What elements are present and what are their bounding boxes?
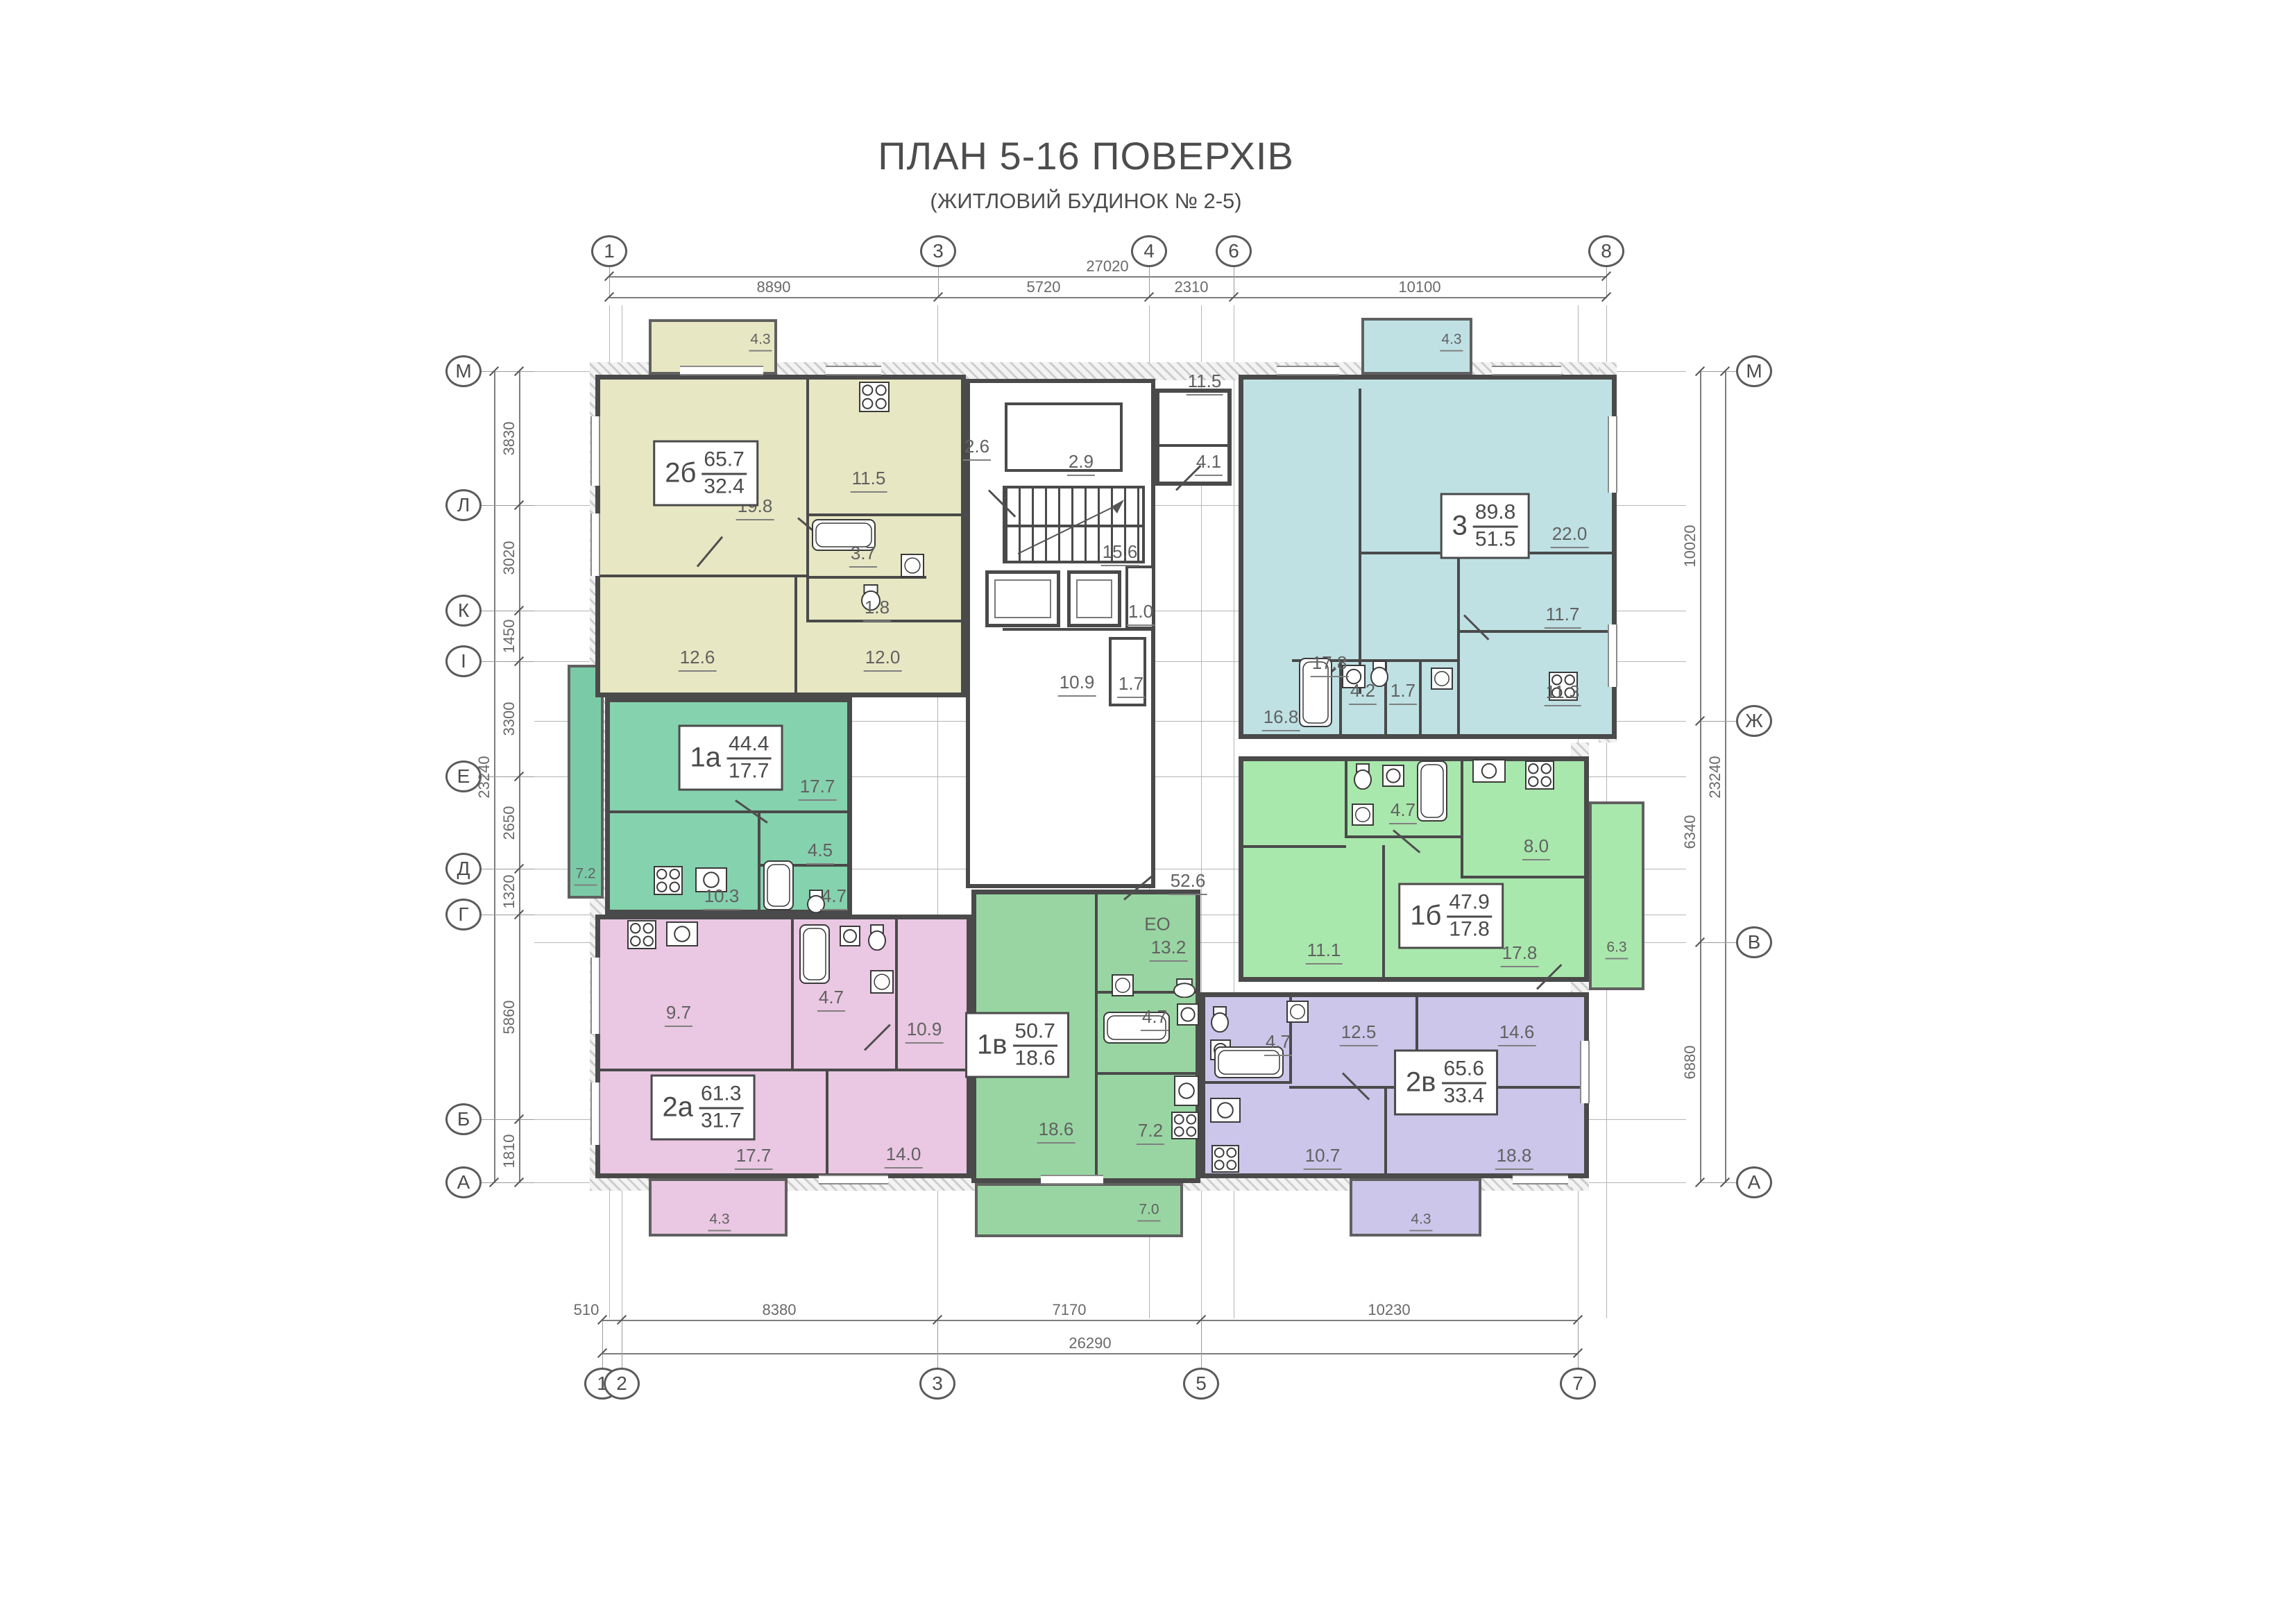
- partition-wall: [1155, 444, 1232, 447]
- dimension-label: 7170: [1053, 1301, 1087, 1319]
- room-area-label: 18.6: [1037, 1119, 1075, 1144]
- room-area-label: 10.9: [1058, 672, 1096, 697]
- axis-extension-line: [482, 611, 534, 611]
- page-title: ПЛАН 5-16 ПОВЕРХІВ: [878, 133, 1294, 178]
- apartment-1b-info-box: 1б47.917.8: [1398, 883, 1504, 949]
- sink-icon: [666, 921, 698, 950]
- window-opening: [590, 1082, 600, 1145]
- axis-extension-line: [1201, 1321, 1202, 1368]
- partition-wall: [1419, 659, 1422, 739]
- room-area-label: 11.1: [1306, 940, 1343, 965]
- axis-marker-left-Л: Л: [445, 489, 482, 521]
- room-area-label: 4.2: [1349, 680, 1377, 705]
- room-area-label: 2.9: [1067, 451, 1095, 476]
- dimension-label: 10100: [1398, 278, 1440, 296]
- axis-marker-left-І: І: [445, 645, 482, 677]
- apartment-area-living: 33.4: [1444, 1084, 1484, 1108]
- room-area-label: 11.5: [851, 468, 887, 493]
- axis-extension-line: [1606, 266, 1607, 298]
- elevator-shaft: [1067, 570, 1121, 627]
- apartment-area-fraction: 65.732.4: [701, 448, 746, 499]
- axis-extension-line: [482, 1182, 534, 1183]
- stove-icon: [1525, 760, 1554, 793]
- partition-wall: [1095, 1072, 1200, 1075]
- washing-machine-icon: [1431, 668, 1453, 693]
- dimension-label: 6340: [1681, 815, 1699, 849]
- dimension-label: 2310: [1175, 278, 1209, 296]
- axis-extension-line: [1701, 371, 1737, 372]
- axis-marker-top-3: 3: [920, 235, 956, 267]
- dimension-label: 3020: [500, 541, 518, 575]
- apartment-area-total: 65.7: [701, 448, 746, 475]
- axis-extension-line: [1701, 942, 1737, 943]
- window-opening: [590, 513, 600, 576]
- axis-marker-bottom-7: 7: [1560, 1368, 1596, 1400]
- bathtub-icon: [1417, 760, 1447, 825]
- room-area-label: 11.7: [1545, 604, 1581, 629]
- partition-wall: [758, 810, 760, 915]
- apartment-area-living: 51.5: [1475, 527, 1515, 552]
- apartment-id-label: 2в: [1406, 1067, 1436, 1098]
- room-area-label: 2.6: [963, 436, 991, 461]
- toilet-icon: [1353, 763, 1372, 793]
- room-area-label: 17.7: [735, 1145, 773, 1170]
- room-area-label: 1.7: [1389, 680, 1417, 705]
- axis-marker-left-К: К: [445, 595, 482, 627]
- stove-icon: [1171, 1112, 1199, 1143]
- window-opening: [680, 366, 763, 375]
- axis-marker-top-8: 8: [1588, 235, 1624, 267]
- dimension-label: 5720: [1027, 278, 1061, 296]
- dimension-label: 8380: [763, 1301, 797, 1319]
- apartment-id-label: 1б: [1410, 901, 1441, 932]
- room-area-label: 4.7: [820, 885, 848, 910]
- room-area-label: 10.3: [703, 885, 741, 910]
- axis-extension-line: [1701, 721, 1737, 722]
- page-subtitle: (ЖИТЛОВИЙ БУДИНОК № 2-5): [930, 189, 1241, 214]
- room-area-label: 14.6: [1498, 1021, 1536, 1046]
- room-area-label: 17.8: [1311, 652, 1349, 677]
- axis-extension-line: [609, 266, 610, 298]
- window-opening: [1492, 366, 1561, 375]
- axis-extension-line: [938, 266, 939, 298]
- partition-wall: [1239, 845, 1346, 848]
- annotation-label: ЕО: [1144, 914, 1171, 935]
- room-area-label: 13.2: [1150, 937, 1188, 962]
- room-area-label: 3.7: [849, 543, 877, 568]
- window-opening: [590, 416, 600, 486]
- axis-extension-line: [482, 1119, 534, 1120]
- apartment-area-total: 44.4: [726, 733, 771, 760]
- dimension-total-label: 27020: [1086, 257, 1128, 275]
- partition-wall: [826, 1069, 828, 1178]
- window-opening: [1580, 1041, 1590, 1103]
- axis-marker-left-Б: Б: [445, 1103, 482, 1135]
- room-area-label: 12.6: [679, 647, 717, 672]
- axis-marker-top-6: 6: [1216, 235, 1252, 267]
- axis-marker-left-М: М: [445, 355, 482, 387]
- apartment-area-total: 61.3: [699, 1082, 743, 1110]
- partition-wall: [1461, 876, 1589, 878]
- stove-icon: [859, 382, 890, 416]
- toilet-icon: [1210, 1006, 1230, 1036]
- balcony-area-label: 4.3: [749, 332, 772, 352]
- washing-machine-icon: [1112, 974, 1134, 1000]
- dimension-label: 1450: [500, 620, 518, 654]
- axis-extension-line: [1701, 1182, 1737, 1183]
- washing-machine-icon: [1286, 1001, 1309, 1026]
- dimension-total-label: 23240: [1706, 756, 1724, 798]
- dimension-line: [602, 1353, 1578, 1354]
- axis-extension-line: [482, 505, 534, 506]
- dimension-label: 3300: [500, 702, 518, 736]
- partition-wall: [1345, 756, 1347, 838]
- axis-extension-line: [482, 371, 534, 372]
- axis-extension-line: [602, 1321, 603, 1368]
- apartment-area-living: 17.7: [729, 759, 769, 783]
- stove-icon: [654, 866, 683, 899]
- axis-marker-right-Ж: Ж: [1736, 705, 1772, 737]
- floor-plan-canvas: ПЛАН 5-16 ПОВЕРХІВ (ЖИТЛОВИЙ БУДИНОК № 2…: [0, 0, 2296, 1623]
- axis-marker-right-В: В: [1736, 926, 1772, 958]
- room-area-label: 9.7: [665, 1002, 692, 1027]
- room-area-label: 4.5: [806, 840, 834, 865]
- dimension-line: [1700, 371, 1701, 1182]
- balcony-area-label: 7.2: [574, 866, 597, 886]
- room-area-label: 15.6: [1101, 541, 1139, 566]
- apartment-1v-info-box: 1в50.718.6: [965, 1012, 1069, 1078]
- axis-extension-line: [482, 661, 534, 662]
- apartment-area-fraction: 61.331.7: [699, 1082, 743, 1133]
- partition-wall: [1457, 552, 1460, 739]
- axis-extension-line: [482, 915, 534, 915]
- partition-wall: [605, 810, 852, 813]
- dimension-label: 10020: [1681, 525, 1699, 567]
- room-area-label: 1.0: [1127, 601, 1155, 626]
- partition-wall: [791, 915, 794, 1069]
- sink-icon: [840, 926, 860, 950]
- bathtub-icon: [799, 924, 830, 987]
- room-area-label: 12.0: [864, 647, 902, 672]
- room-area-label: 4.7: [817, 987, 845, 1012]
- apartment-area-living: 31.7: [701, 1109, 741, 1133]
- balcony-area-label: 4.3: [1440, 332, 1463, 352]
- room-area-label: 11.5: [1187, 371, 1223, 396]
- axis-marker-top-4: 4: [1131, 235, 1167, 267]
- dimension-label: 3830: [500, 422, 518, 456]
- window-opening: [826, 366, 881, 375]
- axis-extension-line: [482, 869, 534, 869]
- window-opening: [1608, 416, 1617, 493]
- elevator-lobby: [1005, 402, 1123, 472]
- dimension-label: 1810: [500, 1135, 518, 1169]
- dimension-total-label: 23240: [475, 756, 493, 798]
- window-opening: [1608, 624, 1617, 687]
- partition-wall: [1359, 389, 1361, 694]
- room-area-label: 10.7: [1304, 1145, 1342, 1170]
- dimension-label: 5860: [500, 1001, 518, 1035]
- room-area-label: 16.8: [1262, 706, 1300, 731]
- dimension-line: [602, 1320, 1578, 1321]
- sink-icon: [1382, 765, 1404, 790]
- apartment-area-living: 18.6: [1015, 1046, 1055, 1071]
- window-opening: [1277, 366, 1339, 375]
- partition-wall: [1382, 845, 1385, 982]
- room-area-label: 7.2: [1137, 1120, 1164, 1145]
- room-area-label: 18.8: [1495, 1145, 1533, 1170]
- apartment-area-fraction: 89.851.5: [1473, 501, 1517, 552]
- balcony-area-label: 4.3: [708, 1212, 731, 1232]
- axis-marker-bottom-5: 5: [1183, 1368, 1219, 1400]
- partition-wall: [1461, 756, 1463, 878]
- axis-marker-bottom-2: 2: [604, 1368, 640, 1400]
- room-area-label: 8.0: [1522, 835, 1550, 860]
- dimension-label: 10230: [1368, 1301, 1410, 1319]
- apartment-area-living: 17.8: [1449, 917, 1489, 942]
- dimension-line: [609, 276, 1606, 278]
- partition-wall: [1384, 1086, 1387, 1178]
- dimension-label: 8890: [757, 278, 791, 296]
- axis-marker-bottom-3: 3: [919, 1368, 955, 1400]
- partition-wall: [595, 575, 806, 577]
- dimension-label: 510: [574, 1301, 599, 1319]
- dimension-label: 6880: [1681, 1046, 1699, 1080]
- apartment-id-label: 3: [1452, 511, 1468, 542]
- toilet-icon: [1173, 978, 1196, 1001]
- apartment-area-total: 89.8: [1473, 501, 1517, 528]
- apartment-area-total: 65.6: [1442, 1057, 1486, 1085]
- axis-extension-line: [1149, 266, 1150, 298]
- room-area-label: 12.5: [1340, 1021, 1378, 1046]
- room-area-label: 4.7: [1141, 1006, 1168, 1031]
- axis-extension-line: [937, 1321, 938, 1368]
- partition-wall: [794, 575, 797, 697]
- balcony-fill: [568, 665, 604, 899]
- sink-icon: [1210, 1098, 1241, 1126]
- apartment-2b-info-box: 2б65.732.4: [653, 441, 758, 507]
- apartment-area-total: 47.9: [1447, 891, 1491, 918]
- room-area-label: 11.3: [1545, 681, 1581, 706]
- room-area-label: 4.1: [1195, 451, 1223, 476]
- axis-extension-line: [1578, 1321, 1579, 1368]
- partition-wall: [895, 915, 898, 1069]
- partition-wall: [806, 513, 966, 516]
- room-area-label: 22.0: [1551, 523, 1589, 548]
- room-area-label: 17.8: [1501, 942, 1539, 967]
- axis-marker-left-А: А: [445, 1166, 482, 1198]
- window-opening: [1513, 1175, 1568, 1184]
- apartment-id-label: 2б: [665, 458, 696, 489]
- apartment-2v-info-box: 2в65.633.4: [1394, 1050, 1498, 1116]
- toilet-icon: [867, 924, 887, 954]
- axis-marker-top-1: 1: [591, 235, 627, 267]
- apartment-area-fraction: 44.417.7: [726, 733, 771, 783]
- apartment-area-total: 50.7: [1013, 1020, 1057, 1047]
- balcony-area-label: 4.3: [1409, 1212, 1432, 1232]
- partition-wall: [806, 379, 809, 621]
- axis-marker-left-Д: Д: [445, 853, 482, 885]
- apartment-3-info-box: 389.851.5: [1440, 493, 1530, 559]
- washing-machine-icon: [870, 970, 894, 997]
- washing-machine-icon: [901, 554, 924, 581]
- balcony-fill: [1589, 801, 1644, 990]
- axis-extension-line: [622, 1321, 622, 1368]
- apartment-1a-info-box: 1а44.417.7: [679, 725, 783, 791]
- axis-extension-line: [1234, 266, 1234, 298]
- partition-wall: [595, 1069, 971, 1071]
- apartment-area-fraction: 47.917.8: [1447, 891, 1491, 942]
- room-area-label: 14.0: [885, 1144, 923, 1169]
- apartment-area-fraction: 50.718.6: [1013, 1020, 1057, 1071]
- dimension-line: [1725, 371, 1726, 1182]
- dimension-line: [609, 297, 1606, 298]
- apartment-id-label: 2а: [663, 1092, 694, 1123]
- stove-icon: [627, 920, 656, 953]
- apartment-id-label: 1а: [690, 742, 722, 774]
- room-area-label: 1.7: [1117, 673, 1145, 698]
- window-opening: [1041, 1175, 1103, 1184]
- dimension-label: 2650: [500, 806, 518, 840]
- balcony-area-label: 6.3: [1605, 940, 1628, 960]
- axis-marker-left-Г: Г: [445, 899, 482, 931]
- apartment-area-fraction: 65.633.4: [1442, 1057, 1486, 1108]
- room-area-label: 17.7: [799, 776, 837, 801]
- balcony-area-label: 7.0: [1137, 1202, 1160, 1222]
- apartment-id-label: 1в: [977, 1030, 1007, 1061]
- dimension-total-label: 26290: [1069, 1334, 1111, 1352]
- apartment-2b-fill: [595, 375, 966, 697]
- elevator-shaft: [985, 570, 1060, 627]
- sink-icon: [1174, 1076, 1199, 1110]
- annotation-label: 52.6: [1169, 870, 1207, 895]
- sink-icon: [1177, 1003, 1199, 1029]
- apartment-area-living: 32.4: [704, 475, 744, 499]
- window-opening: [590, 958, 600, 1034]
- apartment-2a-info-box: 2а61.331.7: [651, 1075, 756, 1141]
- partition-wall: [1095, 890, 1098, 1183]
- bathtub-icon: [763, 860, 794, 914]
- stove-icon: [1211, 1145, 1239, 1176]
- sink-icon: [1472, 759, 1506, 786]
- room-area-label: 10.9: [905, 1019, 944, 1044]
- dimension-label: 1320: [500, 875, 518, 909]
- room-area-label: 4.7: [1389, 799, 1417, 824]
- axis-marker-right-А: А: [1736, 1166, 1772, 1198]
- washing-machine-icon: [1352, 804, 1374, 829]
- room-area-label: 4.7: [1264, 1031, 1292, 1056]
- window-opening: [819, 1175, 888, 1184]
- room-area-label: 1.8: [863, 597, 891, 622]
- axis-marker-right-М: М: [1736, 355, 1772, 387]
